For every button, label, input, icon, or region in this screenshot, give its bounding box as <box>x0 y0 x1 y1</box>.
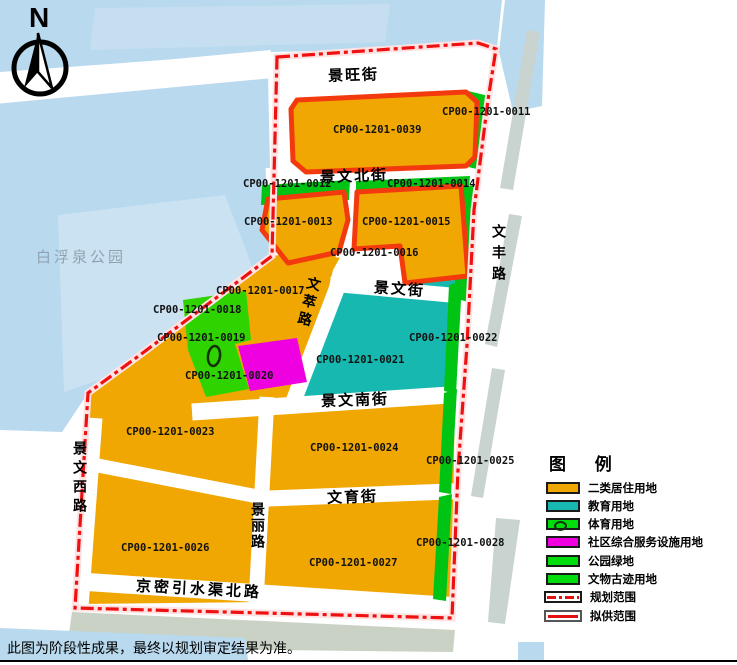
legend-swatch-supply-boundary <box>544 610 582 622</box>
parcel-code-0018: CP00-1201-0018 <box>153 304 242 316</box>
legend-swatch-plan-boundary <box>544 591 582 603</box>
disclaimer-note: 此图为阶段性成果，最终以规划审定结果为准。 <box>7 638 301 658</box>
parcel-code-0021: CP00-1201-0021 <box>316 354 405 366</box>
legend-item-plan-boundary: 规划范围 <box>544 589 636 605</box>
legend-swatch-heritage <box>546 573 580 585</box>
street-jingwennan: 景文南街 <box>321 388 390 411</box>
bottom-divider <box>0 660 737 662</box>
legend-swatch-education <box>546 500 580 512</box>
park-label: 白浮泉公园 <box>36 246 126 267</box>
parcel-code-0039: CP00-1201-0039 <box>333 124 422 136</box>
parcel-code-0013: CP00-1201-0013 <box>244 216 333 228</box>
legend-item-park-green: 公园绿地 <box>546 553 634 569</box>
parcel-code-0015: CP00-1201-0015 <box>362 216 451 228</box>
community-services-parcel <box>238 338 307 391</box>
street-jingwen: 景文街 <box>373 276 425 301</box>
street-wenyu: 文育街 <box>327 485 379 508</box>
legend-item-residential: 二类居住用地 <box>546 480 657 496</box>
parcel-code-0011: CP00-1201-0011 <box>442 106 531 118</box>
street-jingwang: 景旺街 <box>328 63 380 86</box>
parcel-code-0025: CP00-1201-0025 <box>426 455 515 467</box>
parcel-code-0016: CP00-1201-0016 <box>330 247 419 259</box>
street-wenfeng: 文丰路 <box>489 224 509 287</box>
legend-item-education: 教育用地 <box>546 498 634 514</box>
parcel-code-0020: CP00-1201-0020 <box>185 370 274 382</box>
north-label: N <box>29 2 49 34</box>
legend-swatch-sports <box>546 518 580 530</box>
parcel-code-0017: CP00-1201-0017 <box>216 285 305 297</box>
street-jingwenxi: 景文西路 <box>70 441 90 517</box>
dash-dot-line <box>547 596 579 599</box>
parcel-code-0012: CP00-1201-0012 <box>243 178 332 190</box>
legend-item-sports: 体育用地 <box>546 516 634 532</box>
parcel-code-0024: CP00-1201-0024 <box>310 442 399 454</box>
parcel-code-0028: CP00-1201-0028 <box>416 537 505 549</box>
parcel-code-0023: CP00-1201-0023 <box>126 426 215 438</box>
street-jingli: 景丽路 <box>248 502 268 550</box>
planning-map: N 白浮泉公园 景旺街 景文北街 景文街 景文南街 文育街 京密引水渠北路 景文… <box>0 0 737 665</box>
legend-swatch-park-green <box>546 555 580 567</box>
legend-swatch-community <box>546 536 580 548</box>
parcel-code-0014: CP00-1201-0014 <box>387 178 476 190</box>
parcel-code-0019: CP00-1201-0019 <box>157 332 246 344</box>
parcel-code-0026: CP00-1201-0026 <box>121 542 210 554</box>
stadium-icon <box>554 521 567 531</box>
legend-item-community: 社区综合服务设施用地 <box>546 534 703 550</box>
legend-item-heritage: 文物古迹用地 <box>546 571 657 587</box>
legend-title: 图 例 <box>549 450 624 475</box>
solid-red-line <box>548 615 578 618</box>
legend-item-supply-boundary: 拟供范围 <box>544 608 636 624</box>
parcel-code-0022: CP00-1201-0022 <box>409 332 498 344</box>
parcel-code-0027: CP00-1201-0027 <box>309 557 398 569</box>
legend-swatch-residential <box>546 482 580 494</box>
